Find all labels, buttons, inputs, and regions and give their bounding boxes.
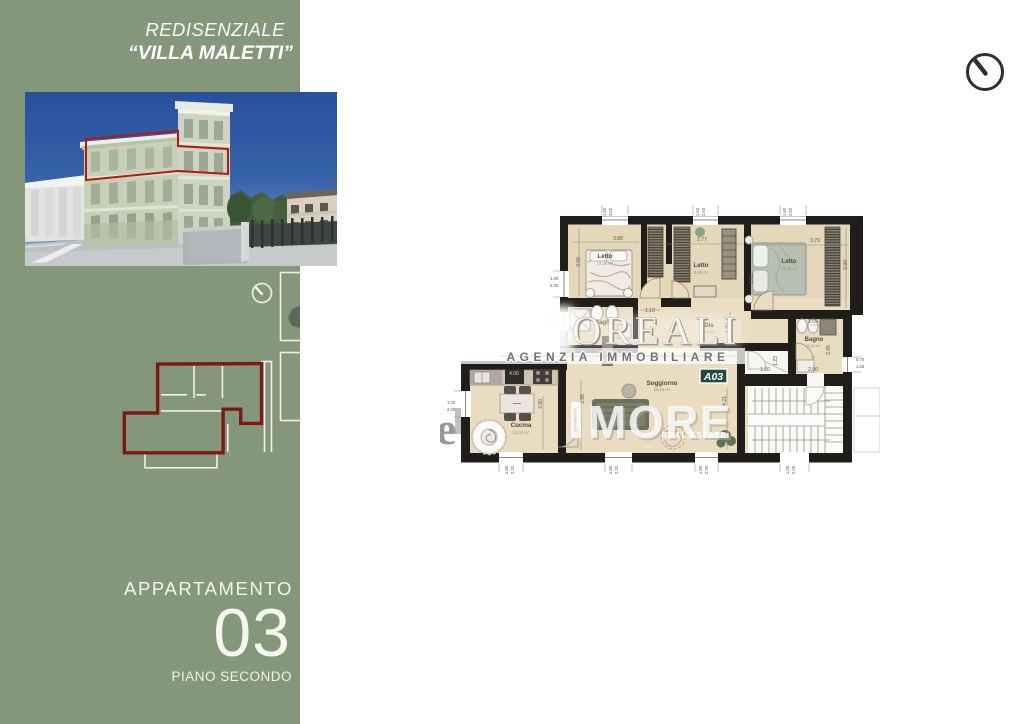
svg-text:2.00: 2.00	[791, 465, 796, 474]
svg-text:Letto: Letto	[781, 258, 796, 265]
svg-text:1.60: 1.60	[602, 207, 607, 216]
svg-text:3.90: 3.90	[843, 260, 849, 270]
svg-text:Cucina: Cucina	[511, 422, 532, 429]
svg-text:REAL ESTATE: REAL ESTATE	[661, 431, 726, 440]
svg-text:A03: A03	[703, 371, 723, 383]
svg-text:9.46 m²: 9.46 m²	[694, 270, 709, 275]
svg-text:1.80: 1.80	[698, 465, 703, 474]
svg-text:4.06: 4.06	[509, 371, 519, 377]
svg-text:26.24 m²: 26.24 m²	[654, 387, 671, 392]
svg-text:1.60: 1.60	[695, 207, 700, 216]
svg-text:1.65: 1.65	[856, 364, 865, 369]
svg-text:13.36 m²: 13.36 m²	[781, 266, 798, 271]
svg-text:3.90: 3.90	[538, 399, 544, 409]
svg-text:2.77: 2.77	[697, 237, 707, 243]
svg-text:1.23: 1.23	[773, 356, 779, 366]
svg-text:12.05 m²: 12.05 m²	[513, 430, 530, 435]
svg-text:Letto: Letto	[693, 262, 708, 269]
svg-text:2.65: 2.65	[826, 345, 832, 355]
svg-text:2.60: 2.60	[701, 207, 706, 216]
svg-text:1.80: 1.80	[608, 465, 613, 474]
svg-text:2.20: 2.20	[704, 465, 709, 474]
svg-text:1.50: 1.50	[760, 367, 770, 373]
svg-text:3.06: 3.06	[576, 257, 582, 267]
svg-text:2.60: 2.60	[788, 207, 793, 216]
svg-text:AGENZIA IMMOBILIARE: AGENZIA IMMOBILIARE	[506, 350, 729, 364]
svg-text:2.20: 2.20	[614, 465, 619, 474]
svg-text:e: e	[440, 403, 456, 454]
svg-text:Letto: Letto	[597, 253, 612, 260]
svg-text:2.63: 2.63	[749, 274, 755, 284]
svg-text:3.88: 3.88	[613, 236, 623, 242]
svg-text:17.36 m²: 17.36 m²	[597, 261, 614, 266]
svg-text:2.09: 2.09	[808, 319, 818, 325]
svg-text:1.60: 1.60	[782, 207, 787, 216]
svg-text:0.70: 0.70	[856, 357, 865, 362]
svg-text:Soggiorno: Soggiorno	[647, 380, 678, 387]
svg-text:1.00: 1.00	[550, 276, 559, 281]
svg-text:2.00: 2.00	[808, 367, 818, 373]
svg-text:5.41 m²: 5.41 m²	[807, 343, 821, 348]
svg-text:3.79: 3.79	[810, 238, 820, 244]
svg-text:STRUMENTO: STRUMENTO	[574, 408, 578, 432]
svg-text:OREALI: OREALI	[572, 308, 740, 353]
svg-text:2.20: 2.20	[510, 465, 515, 474]
svg-text:1.00: 1.00	[785, 465, 790, 474]
svg-text:MORE: MORE	[588, 396, 732, 448]
svg-text:2.60: 2.60	[608, 207, 613, 216]
svg-text:2.00: 2.00	[550, 283, 559, 288]
svg-text:1.80: 1.80	[504, 465, 509, 474]
